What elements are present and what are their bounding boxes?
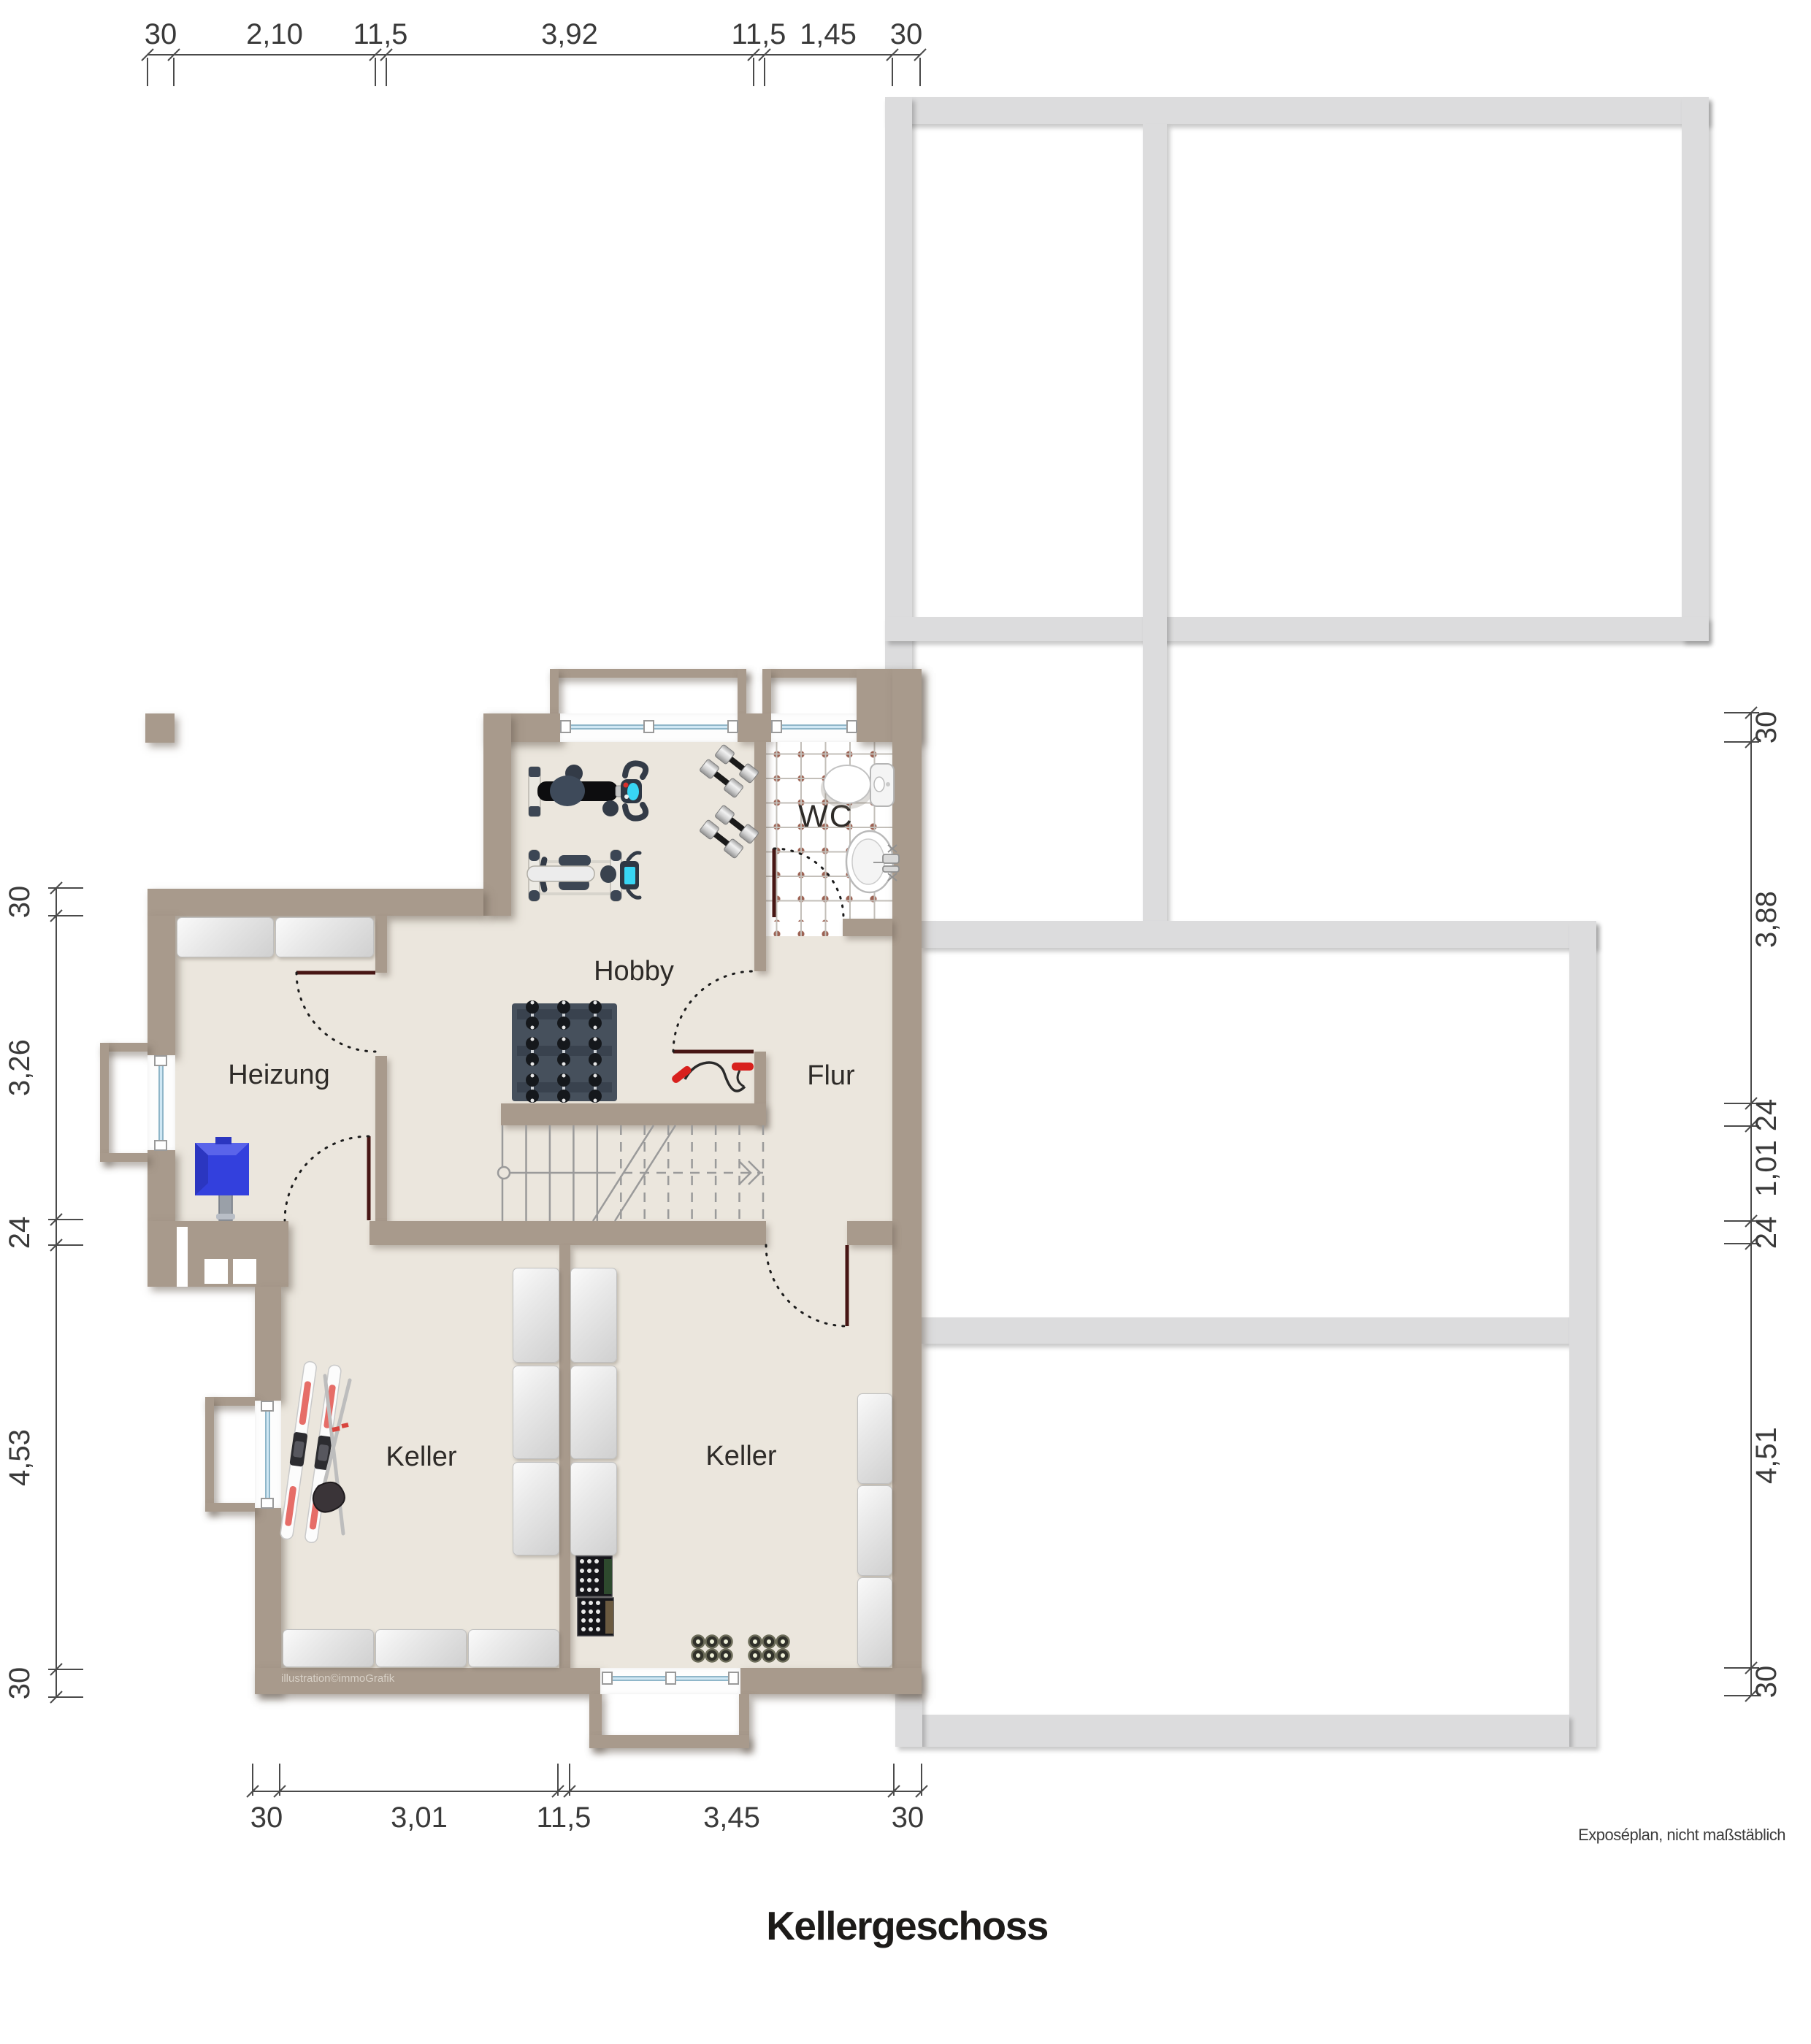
svg-text:2,10: 2,10	[246, 18, 303, 50]
svg-text:24: 24	[1750, 1217, 1783, 1249]
svg-text:1,45: 1,45	[800, 18, 857, 50]
svg-text:3,45: 3,45	[703, 1802, 760, 1834]
svg-text:30: 30	[4, 1667, 36, 1700]
svg-text:4,53: 4,53	[4, 1429, 36, 1486]
svg-text:30: 30	[1750, 1666, 1783, 1699]
svg-text:3,01: 3,01	[391, 1802, 448, 1834]
svg-text:1,01: 1,01	[1750, 1140, 1783, 1197]
svg-text:11,5: 11,5	[537, 1802, 591, 1834]
svg-text:30: 30	[1750, 711, 1783, 744]
svg-text:4,51: 4,51	[1750, 1427, 1783, 1484]
svg-text:30: 30	[892, 1802, 924, 1834]
svg-text:11,5: 11,5	[353, 18, 408, 50]
svg-text:30: 30	[145, 18, 177, 50]
svg-text:24: 24	[4, 1217, 36, 1249]
svg-text:3,26: 3,26	[4, 1039, 36, 1096]
svg-text:3,88: 3,88	[1750, 891, 1783, 948]
svg-text:24: 24	[1750, 1099, 1783, 1132]
svg-text:3,92: 3,92	[541, 18, 598, 50]
svg-text:11,5: 11,5	[732, 18, 786, 50]
svg-text:30: 30	[890, 18, 923, 50]
svg-text:30: 30	[250, 1802, 283, 1834]
svg-text:30: 30	[4, 886, 36, 919]
